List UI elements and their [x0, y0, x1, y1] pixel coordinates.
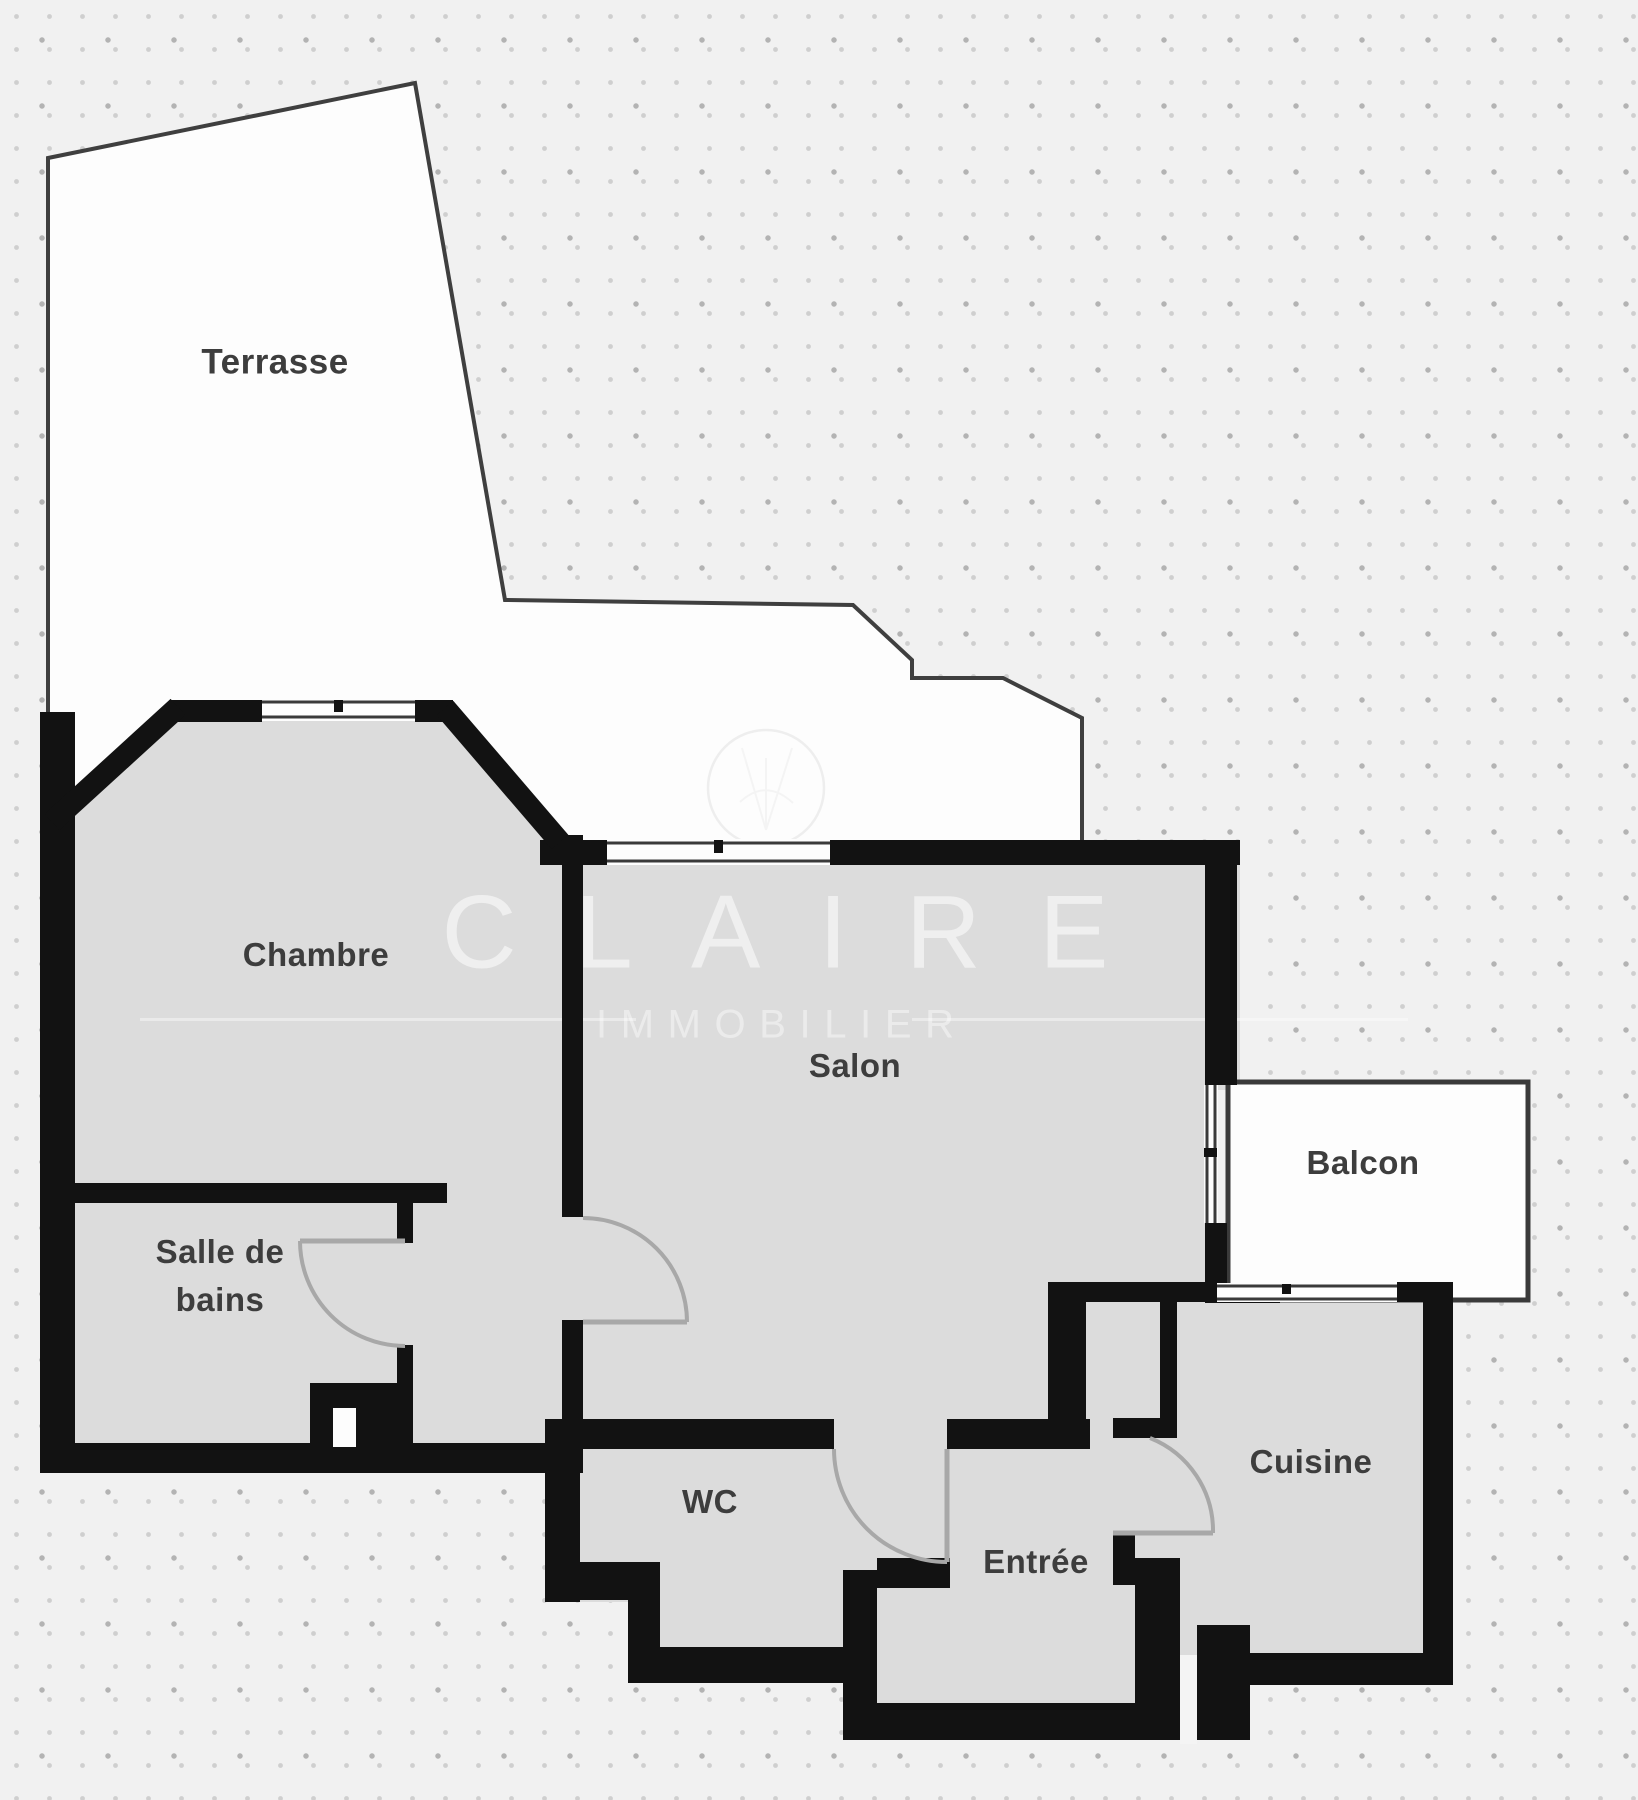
room-label-chambre: Chambre [243, 931, 390, 979]
room-label-salle-de-bains: Salle de bains [156, 1228, 285, 1324]
floorplan-canvas: CLAIRE IMMOBILIER [0, 0, 1638, 1800]
room-label-salle-de-bains-line1: Salle de [156, 1233, 285, 1270]
room-label-wc: WC [682, 1478, 738, 1526]
room-label-entree: Entrée [983, 1538, 1089, 1586]
room-label-cuisine: Cuisine [1250, 1438, 1373, 1486]
room-labels: Terrasse Chambre Salle de bains Salon Ba… [0, 0, 1638, 1800]
room-label-salon: Salon [809, 1042, 901, 1090]
room-label-terrasse: Terrasse [201, 338, 348, 389]
room-label-balcon: Balcon [1306, 1139, 1419, 1187]
room-label-salle-de-bains-line2: bains [176, 1281, 265, 1318]
